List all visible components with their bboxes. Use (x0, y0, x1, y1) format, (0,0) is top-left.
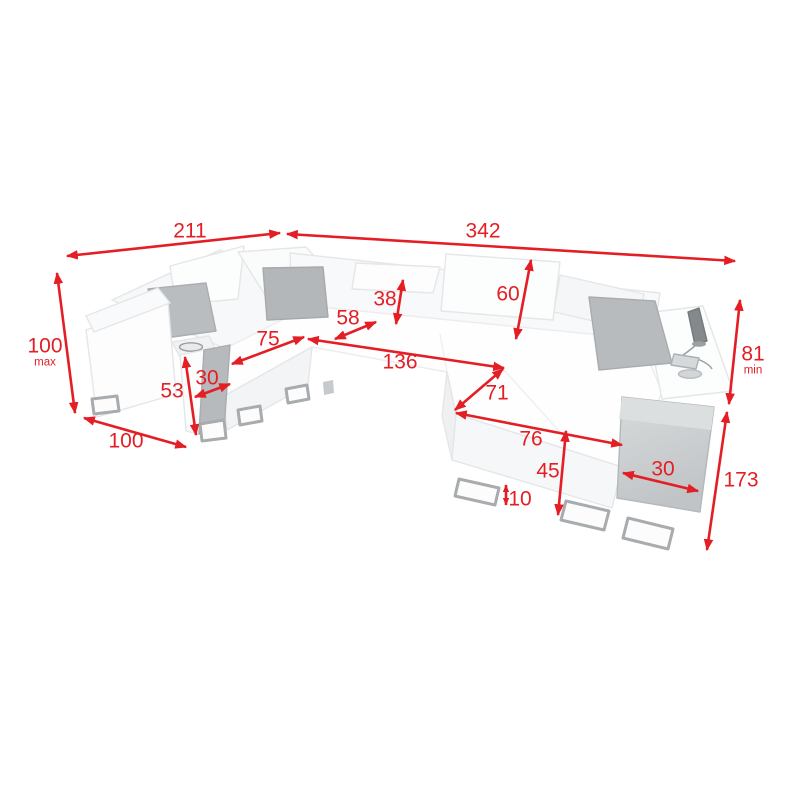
dim-label-corner-seat-width: 58 (336, 308, 359, 329)
dim-label-right-min-height: 81min (741, 343, 764, 377)
dim-label-left-seat-width: 75 (256, 329, 279, 350)
dim-label-chaise-width: 71 (485, 383, 508, 404)
dim-label-seat-length: 136 (382, 352, 417, 373)
dim-label-top-left-width: 211 (173, 221, 206, 242)
arrow-right-min-height (729, 300, 740, 404)
dim-label-left-height: 100max (27, 335, 62, 369)
dim-label-backrest-height: 60 (496, 284, 519, 305)
left-cupholder (180, 343, 203, 351)
dim-label-left-console-height: 53 (160, 381, 183, 402)
leg-console (200, 420, 226, 441)
leg-front-left (92, 396, 119, 414)
right-cupholder (679, 370, 702, 378)
dim-label-right-console-width: 30 (651, 459, 674, 480)
dim-label-headrest-height: 38 (373, 289, 396, 310)
dim-label-top-total-width: 342 (465, 221, 500, 242)
corner-pillow (263, 267, 328, 320)
rear-leg (323, 380, 334, 395)
dim-label-seat-height: 45 (536, 461, 559, 482)
dim-label-left-console-width: 30 (195, 368, 218, 389)
dim-label-chaise-length: 76 (519, 429, 542, 450)
leg-mid-2 (286, 385, 309, 403)
dim-label-leg-height: 10 (508, 489, 531, 510)
leg-mid-1 (238, 406, 262, 425)
right-pillow (589, 297, 672, 370)
sofa-dimension-diagram: 211 342 100max 100 53 30 75 58 38 60 136… (0, 0, 800, 800)
leg-chaise-1 (455, 479, 499, 505)
sofa-illustration (0, 0, 800, 800)
dim-label-left-arm-depth: 100 (108, 431, 143, 452)
arrow-top-total-width (287, 234, 735, 261)
dim-label-right-side-depth: 173 (723, 470, 758, 491)
leg-chaise-3 (623, 518, 673, 549)
